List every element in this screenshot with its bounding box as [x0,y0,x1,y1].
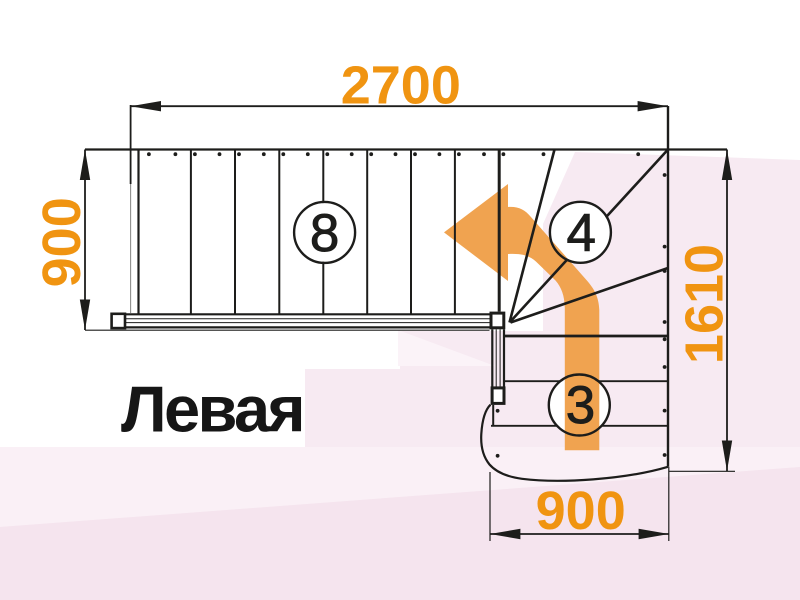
svg-text:900: 900 [32,197,92,287]
svg-text:8: 8 [310,204,339,263]
svg-text:3: 3 [566,376,595,435]
svg-text:4: 4 [567,204,596,263]
svg-text:900: 900 [536,481,626,541]
svg-text:2700: 2700 [341,56,461,116]
svg-text:1610: 1610 [674,244,734,364]
svg-text:Левая: Левая [121,373,303,446]
